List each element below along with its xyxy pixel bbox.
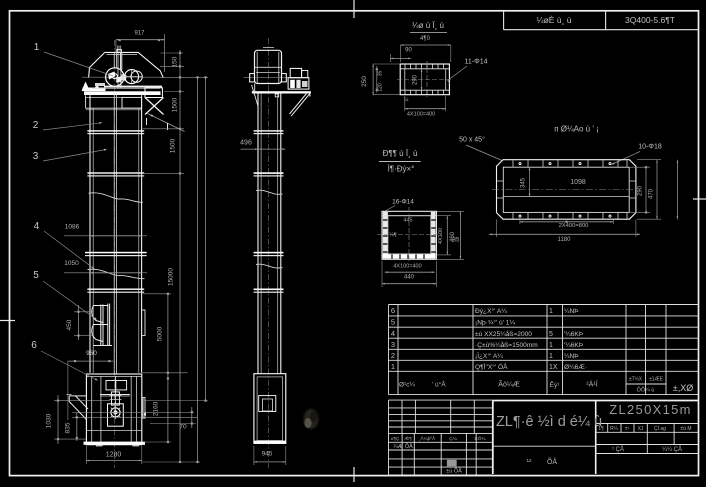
svg-text:1X: 1X <box>549 364 558 371</box>
svg-text:Ç¼: Ç¼ <box>449 436 457 442</box>
svg-text:¼¼ ÇÅ: ¼¼ ÇÅ <box>662 446 682 453</box>
svg-text:1280: 1280 <box>106 452 122 459</box>
svg-text:¡Nþ·¾°' ù' 1¼: ¡Nþ·¾°' ù' 1¼ <box>475 319 515 327</box>
svg-text:70: 70 <box>179 424 187 431</box>
svg-text:150: 150 <box>172 56 179 67</box>
svg-text:±ù ÕÅ: ±ù ÕÅ <box>446 468 462 475</box>
svg-text:¼¶: ¼¶ <box>389 233 397 239</box>
svg-text:±T½X: ±T½X <box>629 376 643 383</box>
svg-text:917: 917 <box>134 31 145 37</box>
svg-text:1: 1 <box>391 362 395 371</box>
svg-text:6: 6 <box>31 340 37 351</box>
svg-text:440: 440 <box>404 275 415 281</box>
svg-text:470: 470 <box>649 188 655 199</box>
svg-text:2X400=800: 2X400=800 <box>559 223 589 229</box>
svg-text:±,XØ: ±,XØ <box>673 383 693 393</box>
svg-text:'¼6KÞ: '¼6KÞ <box>564 342 584 349</box>
svg-text:XJ: XJ <box>638 426 644 432</box>
svg-text:6: 6 <box>391 306 395 315</box>
svg-text:1: 1 <box>549 353 553 360</box>
svg-text:4X100: 4X100 <box>438 228 444 244</box>
svg-text:835: 835 <box>65 422 72 433</box>
svg-text:Ãö¼Æ: Ãö¼Æ <box>498 380 519 389</box>
svg-text:5000: 5000 <box>157 326 164 341</box>
svg-text:1098: 1098 <box>570 179 586 186</box>
svg-text:Ð¶¶ ú Ï¸ ú: Ð¶¶ ú Ï¸ ú <box>383 149 418 158</box>
svg-text:4X100=400: 4X100=400 <box>393 264 421 270</box>
svg-text:±ù M: ±ù M <box>680 426 691 432</box>
svg-text:1: 1 <box>549 342 553 349</box>
svg-text:5: 5 <box>391 318 395 327</box>
svg-text:4: 4 <box>391 329 395 338</box>
svg-text:Q¶Ì"X°' ÖÅ: Q¶Ì"X°' ÖÅ <box>475 362 508 371</box>
svg-text:¹ ÇÅ: ¹ ÇÅ <box>612 446 624 453</box>
svg-text:¼Æ ÕÅ: ¼Æ ÕÅ <box>393 443 413 450</box>
svg-text:945: 945 <box>262 451 273 458</box>
svg-text:±1ÆE: ±1ÆE <box>649 377 664 383</box>
svg-text:4X100=400: 4X100=400 <box>407 112 435 118</box>
svg-text:п Ø¼Ao ù ' ¡: п Ø¼Ao ù ' ¡ <box>554 125 599 134</box>
svg-text:·Ç±ù%¼åß=1500mm: ·Ç±ù%¼åß=1500mm <box>475 341 538 349</box>
svg-text:1030: 1030 <box>46 413 53 428</box>
svg-text:11-Φ14: 11-Φ14 <box>465 59 488 66</box>
svg-text:445: 445 <box>403 218 412 224</box>
svg-text:ÔÕ¼ ù: ÔÕ¼ ù <box>637 387 655 394</box>
svg-text:290: 290 <box>638 185 644 196</box>
svg-text:35: 35 <box>378 71 384 77</box>
svg-text:4¶0: 4¶0 <box>420 36 431 42</box>
svg-text:Ǽ¶: Ǽ¶ <box>404 435 412 442</box>
svg-text:Ø¼6Æ·: Ø¼6Æ· <box>564 364 587 371</box>
svg-text:3: 3 <box>391 340 395 349</box>
svg-text:Ø¹c¼: Ø¹c¼ <box>399 382 415 389</box>
svg-text:ZL250X15m: ZL250X15m <box>609 402 692 417</box>
svg-text:' ú°Å: ' ú°Å <box>432 380 446 389</box>
svg-text:10-Φ18: 10-Φ18 <box>638 144 662 151</box>
svg-text:'¼6KÞ: '¼6KÞ <box>564 331 584 338</box>
svg-text:R¼: R¼ <box>610 426 619 432</box>
svg-text:Êý¹: Êý¹ <box>550 380 561 389</box>
svg-text:50 x 45°: 50 x 45° <box>459 136 485 144</box>
svg-text:496: 496 <box>240 140 252 147</box>
svg-text:2160: 2160 <box>153 401 160 416</box>
svg-text:5: 5 <box>33 270 39 281</box>
svg-text:¹²: ¹² <box>527 459 532 466</box>
svg-text:²Ä¹Ï: ²Ä¹Ï <box>586 381 597 389</box>
svg-text:345: 345 <box>521 177 527 188</box>
svg-text:¼: ¼ <box>404 98 409 104</box>
svg-text:¼NÞ: ¼NÞ <box>564 353 579 360</box>
svg-text:1050: 1050 <box>64 260 79 267</box>
svg-text:¼øÈ ù¸ ù: ¼øÈ ù¸ ù <box>537 15 572 25</box>
svg-text:¡Ì¿X°' A¼: ¡Ì¿X°' A¼ <box>475 351 503 360</box>
svg-text:290: 290 <box>413 74 419 85</box>
svg-text:1: 1 <box>549 308 553 315</box>
svg-text:90: 90 <box>405 48 412 54</box>
svg-text:±¹: ±¹ <box>625 426 630 432</box>
svg-text:¸Ä¼þºÅ: ¸Ä¼þºÅ <box>419 435 436 442</box>
svg-text:250: 250 <box>361 76 368 87</box>
svg-text:¼ø ú Ï¸ ú: ¼ø ú Ï¸ ú <box>412 21 444 30</box>
svg-text:3: 3 <box>33 151 39 162</box>
svg-text:450: 450 <box>66 319 73 330</box>
svg-text:±¶Ç: ±¶Ç <box>391 436 400 442</box>
svg-text:1: 1 <box>34 42 40 53</box>
svg-text:ZL¶·ê ½ì d é¼ ù: ZL¶·ê ½ì d é¼ ù <box>496 414 602 430</box>
svg-text:Ðý¿X°' A¼: Ðý¿X°' A¼ <box>475 307 507 315</box>
svg-text:1086: 1086 <box>65 224 80 231</box>
svg-text:±ù XX25¼åß=2000: ±ù XX25¼åß=2000 <box>475 330 532 338</box>
svg-text:460: 460 <box>450 231 456 242</box>
svg-text:Ì¶·Ðý×°: Ì¶·Ðý×° <box>388 165 415 174</box>
svg-text:1500: 1500 <box>170 138 177 153</box>
svg-text:ÈÕ¼: ÈÕ¼ <box>475 435 487 442</box>
svg-text:ÇÌ ag: ÇÌ ag <box>654 425 666 432</box>
svg-text:15000: 15000 <box>168 268 175 286</box>
svg-text:2: 2 <box>391 351 395 360</box>
svg-text:16-Φ14: 16-Φ14 <box>392 199 414 206</box>
svg-text:I: I <box>166 122 169 133</box>
svg-text:120: 120 <box>378 83 384 92</box>
svg-text:¼NÞ: ¼NÞ <box>564 308 579 315</box>
svg-text:I: I <box>145 117 148 128</box>
svg-text:960: 960 <box>86 350 97 357</box>
svg-text:1500: 1500 <box>172 97 179 112</box>
svg-text:1180: 1180 <box>558 237 572 243</box>
svg-text:ÕÅ: ÕÅ <box>547 457 557 466</box>
svg-text:2: 2 <box>33 120 39 131</box>
svg-text:4: 4 <box>34 221 40 232</box>
svg-text:5: 5 <box>549 331 553 338</box>
svg-text:3Q400-5.6¶T: 3Q400-5.6¶T <box>625 15 675 25</box>
